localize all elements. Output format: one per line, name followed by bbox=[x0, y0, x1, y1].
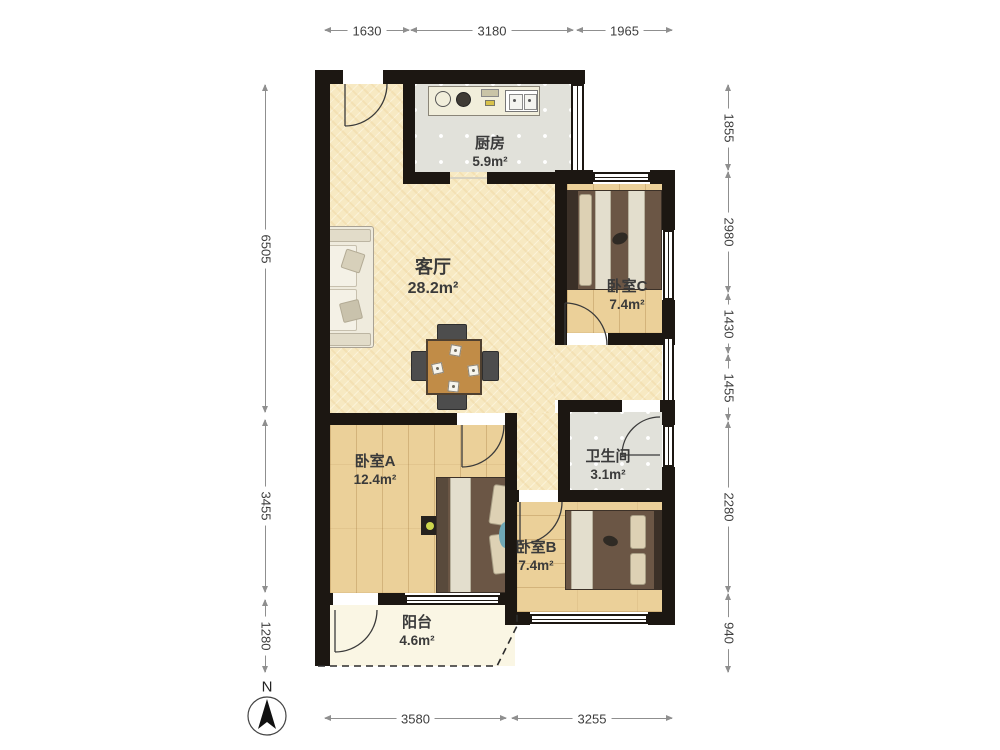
dim-value: 3255 bbox=[573, 712, 612, 727]
room-area: 7.4m² bbox=[516, 558, 557, 575]
dim-left-3: 1280 bbox=[265, 600, 266, 672]
dim-left-1: 6505 bbox=[265, 85, 266, 412]
room-label-kitchen: 厨房 5.9m² bbox=[472, 135, 507, 171]
room-label-bathroom: 卫生间 3.1m² bbox=[585, 448, 630, 484]
dim-value: 6505 bbox=[259, 229, 274, 268]
entrance-door bbox=[345, 84, 387, 126]
room-area: 7.4m² bbox=[607, 297, 648, 314]
bedroom-b-door bbox=[520, 502, 562, 544]
dim-left-2: 3455 bbox=[265, 420, 266, 592]
bedroom-a-door bbox=[462, 425, 504, 467]
dim-right-2: 2980 bbox=[728, 172, 729, 292]
room-label-living: 客厅 28.2m² bbox=[408, 256, 459, 299]
room-name: 客厅 bbox=[408, 256, 459, 279]
dim-bottom-1: 3580 bbox=[325, 718, 506, 719]
north-arrow-icon bbox=[248, 697, 286, 735]
dim-value: 3580 bbox=[396, 712, 435, 727]
room-label-balcony: 阳台 4.6m² bbox=[399, 614, 434, 650]
dim-value: 1630 bbox=[348, 24, 387, 39]
dim-value: 3455 bbox=[259, 487, 274, 526]
dim-top-3: 1965 bbox=[577, 30, 672, 31]
dim-right-3: 1430 bbox=[728, 294, 729, 353]
dim-right-6: 940 bbox=[728, 594, 729, 672]
dim-value: 2280 bbox=[722, 488, 737, 527]
room-area: 3.1m² bbox=[585, 467, 630, 484]
dim-top-1: 1630 bbox=[325, 30, 409, 31]
dim-value: 1280 bbox=[259, 617, 274, 656]
dim-right-4: 1455 bbox=[728, 355, 729, 420]
dim-top-2: 3180 bbox=[411, 30, 573, 31]
dim-right-1: 1855 bbox=[728, 85, 729, 170]
room-label-bedroom-c: 卧室C 7.4m² bbox=[607, 278, 648, 314]
room-name: 厨房 bbox=[472, 135, 507, 154]
room-name: 阳台 bbox=[399, 614, 434, 633]
room-name: 卧室B bbox=[516, 539, 557, 558]
room-area: 28.2m² bbox=[408, 278, 459, 298]
dim-value: 2980 bbox=[722, 213, 737, 252]
bedroom-c-door bbox=[565, 303, 607, 345]
compass-north-label: N bbox=[262, 679, 273, 696]
dim-value: 1455 bbox=[722, 368, 737, 407]
dim-value: 940 bbox=[722, 617, 737, 649]
room-name: 卫生间 bbox=[585, 448, 630, 467]
room-name: 卧室C bbox=[607, 278, 648, 297]
room-label-bedroom-a: 卧室A 12.4m² bbox=[354, 453, 397, 489]
dim-value: 1855 bbox=[722, 108, 737, 147]
dim-value: 1430 bbox=[722, 304, 737, 343]
dim-value: 3180 bbox=[473, 24, 512, 39]
doors-and-compass-overlay bbox=[0, 0, 1000, 750]
dim-value: 1965 bbox=[605, 24, 644, 39]
room-name: 卧室A bbox=[354, 453, 397, 472]
dim-bottom-2: 3255 bbox=[512, 718, 672, 719]
balcony-door bbox=[335, 610, 377, 652]
room-label-bedroom-b: 卧室B 7.4m² bbox=[516, 539, 557, 575]
room-area: 4.6m² bbox=[399, 633, 434, 650]
room-area: 5.9m² bbox=[472, 154, 507, 171]
dim-right-5: 2280 bbox=[728, 422, 729, 592]
room-area: 12.4m² bbox=[354, 472, 397, 489]
floor-plan-canvas: 厨房 5.9m² 客厅 28.2m² 卧室C 7.4m² 卫生间 3.1m² 卧… bbox=[0, 0, 1000, 750]
